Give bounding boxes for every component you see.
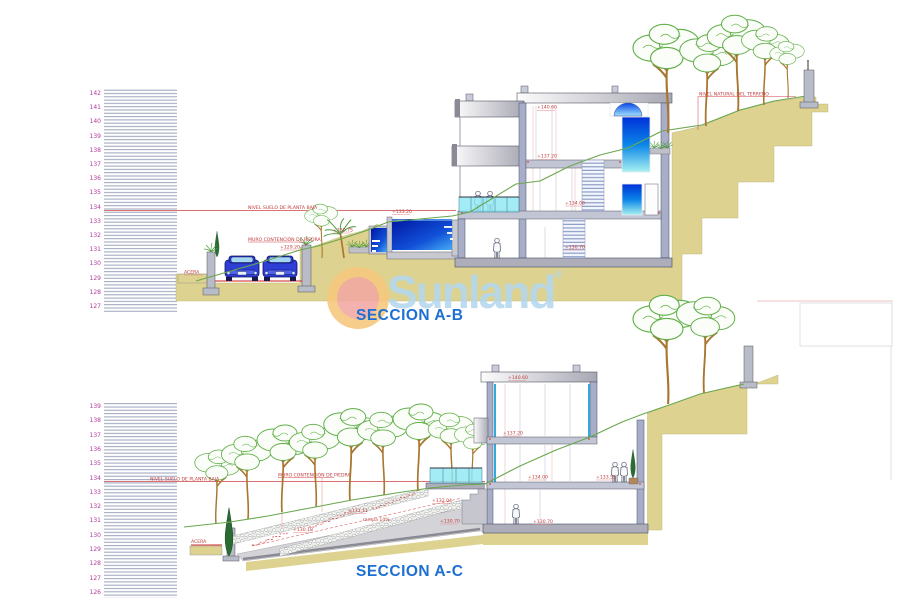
section-ac-title: SECCION A-C: [356, 563, 463, 581]
balcony-ac: [474, 418, 488, 443]
label-muro-ac: MURO CONTENCIÓN DE PIEDRA: [278, 472, 352, 479]
label-cota-terraza: +133.55: [596, 475, 616, 481]
window-ab: [622, 184, 642, 215]
pool-water: [392, 219, 452, 250]
glass-railing-ab: [459, 197, 519, 212]
hillside-tree: [677, 297, 735, 393]
label-nivel-suelo-ab: NIVEL SUELO DE PLANTA BAJA: [248, 205, 318, 211]
label-cota-pb-ab: +134.00: [565, 201, 585, 207]
label-acera-ab: ACERA: [184, 270, 200, 276]
label-cota-escalon-2: +131.11: [348, 508, 368, 514]
section-ab-title: SECCION A-B: [356, 307, 463, 325]
cypress-tree: [225, 508, 233, 556]
car: [225, 256, 259, 281]
label-nivel-suelo-ac: NIVEL SUELO DE PLANTA BAJA: [150, 477, 220, 483]
frame-box: [800, 303, 892, 346]
label-cota-jardinera: +130.75: [333, 228, 353, 234]
pool-ab: [369, 217, 462, 259]
terrain-right-ac: [643, 375, 778, 530]
section-ac-drawing: NIVEL SUELO DE PLANTA BAJA MURO CONTENCI…: [104, 295, 778, 598]
balcony-slab-ab: [452, 146, 524, 166]
label-cota-roof-ab: +140.60: [537, 105, 557, 111]
roof-slab-ab: [517, 93, 672, 103]
label-cota-roof-ac: +140.60: [508, 375, 528, 381]
label-muro-ab: MURO CONTENCIÓN DE PIEDRA: [248, 236, 322, 243]
building-ac: [462, 365, 648, 533]
label-cota-escalon-1: +130.18: [293, 527, 313, 533]
staircase-ab: [582, 160, 604, 211]
label-cota-rampa-base: +130.70: [440, 519, 460, 525]
label-nivel-natural-ab: NIVEL NATURAL DEL TERRENO: [699, 92, 769, 98]
retaining-wall-ac: [744, 346, 753, 384]
elevation-band-bottom: [104, 402, 177, 598]
street-wall-right-ab: [302, 245, 311, 288]
cypress-tree: [215, 231, 219, 257]
blueprint-canvas: NIVEL SUELO DE PLANTA BAJA MURO CONTENCI…: [0, 0, 899, 600]
label-cota-pb-ac: +134.00: [528, 475, 548, 481]
entry-steps-ac: [462, 489, 487, 524]
label-cota-sotano-ab: +130.70: [565, 245, 585, 251]
retaining-wall-ab: [804, 70, 814, 104]
label-cota-piscina: +133.20: [392, 209, 412, 215]
door-ab: [645, 184, 658, 215]
roof-slab-ac: [481, 372, 597, 382]
sidewalk-ac: [190, 546, 222, 555]
floor-slab-pb-ac: [487, 482, 644, 489]
wall-planter-ab: [650, 148, 670, 154]
plant-pot: [629, 478, 638, 484]
label-rampa: rampa 14%: [363, 517, 390, 523]
registered-mark: ®: [554, 269, 562, 281]
label-cota-p1-ab: +137.20: [537, 154, 557, 160]
street-wall-left-ab: [207, 252, 215, 290]
label-acera-ac: ACERA: [191, 539, 207, 545]
building-ab: [452, 86, 673, 267]
slope-tree: [289, 424, 339, 507]
label-cota-muro-calle: +129.20: [280, 245, 300, 251]
hillside-tree: [770, 41, 804, 98]
label-cota-p1-ac: +137.20: [503, 431, 523, 437]
label-cota-sotano-ac: +130.70: [533, 519, 553, 525]
foundation-slab-ac: [483, 524, 648, 533]
basement-staircase-ab: [563, 219, 585, 258]
elevation-band-top: [104, 88, 177, 312]
label-cota-escalon-3: +132.04: [432, 498, 452, 504]
